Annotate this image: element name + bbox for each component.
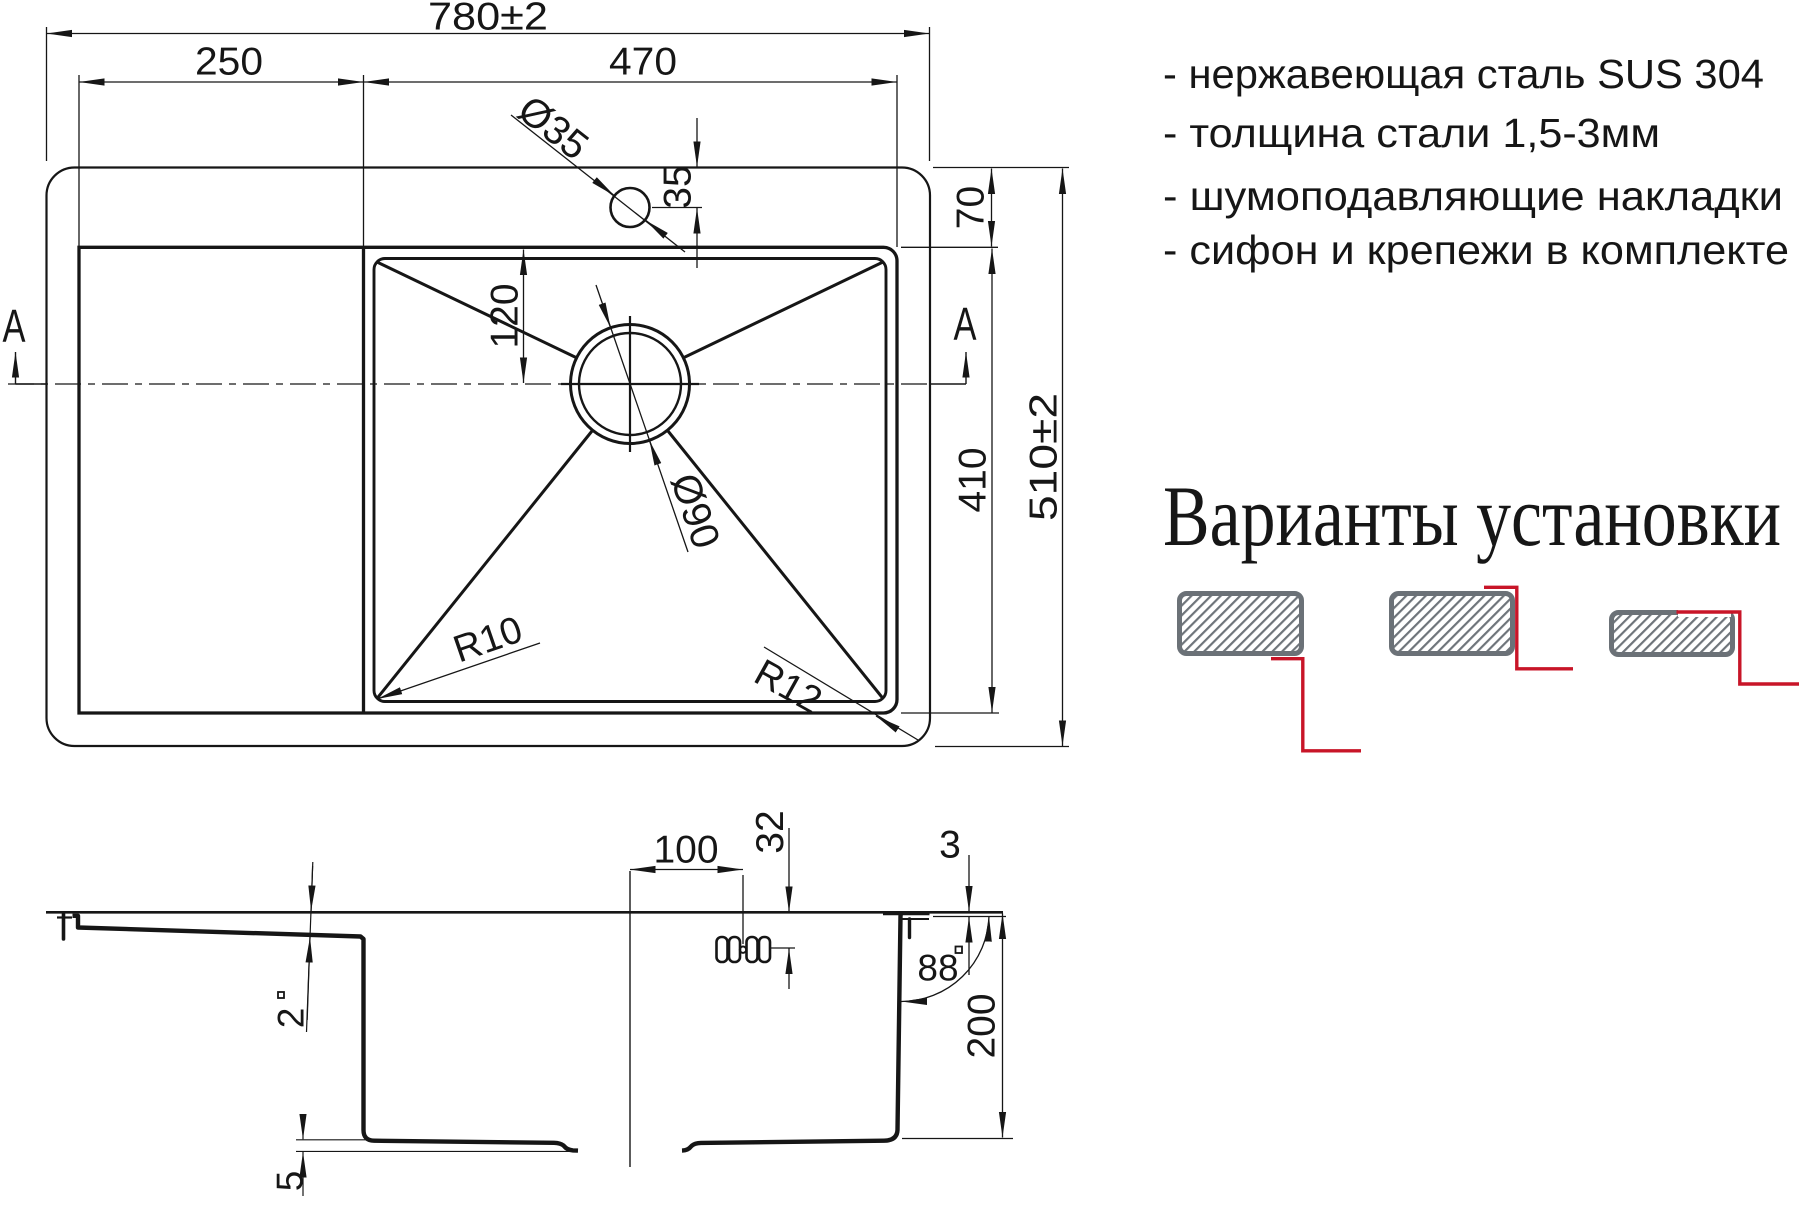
svg-text:5: 5 [270, 1171, 311, 1192]
svg-text:32: 32 [749, 810, 792, 853]
svg-text:2: 2 [271, 1008, 312, 1029]
svg-text:200: 200 [961, 993, 1004, 1058]
svg-text:120: 120 [484, 283, 527, 348]
svg-text:100: 100 [653, 829, 718, 872]
svg-text:70: 70 [950, 186, 993, 229]
svg-text:780±2: 780±2 [428, 0, 548, 39]
svg-text:- шумоподавляющие накладки: - шумоподавляющие накладки [1163, 173, 1783, 219]
svg-text:A: A [954, 298, 977, 350]
svg-text:510±2: 510±2 [1023, 393, 1066, 521]
svg-text:- толщина стали 1,5-3мм: - толщина стали 1,5-3мм [1163, 110, 1660, 156]
svg-text:- нержавеющая сталь SUS 304: - нержавеющая сталь SUS 304 [1163, 51, 1764, 97]
svg-text:- сифон и крепежи в комплекте: - сифон и крепежи в комплекте [1163, 227, 1789, 273]
svg-text:A: A [3, 300, 26, 352]
svg-text:35: 35 [657, 165, 700, 208]
svg-text:410: 410 [952, 447, 995, 512]
svg-text:470: 470 [609, 41, 677, 84]
svg-text:88: 88 [917, 948, 958, 989]
svg-text:3: 3 [939, 824, 961, 867]
svg-text:250: 250 [195, 41, 263, 84]
svg-text:Варианты установки: Варианты установки [1163, 468, 1781, 564]
